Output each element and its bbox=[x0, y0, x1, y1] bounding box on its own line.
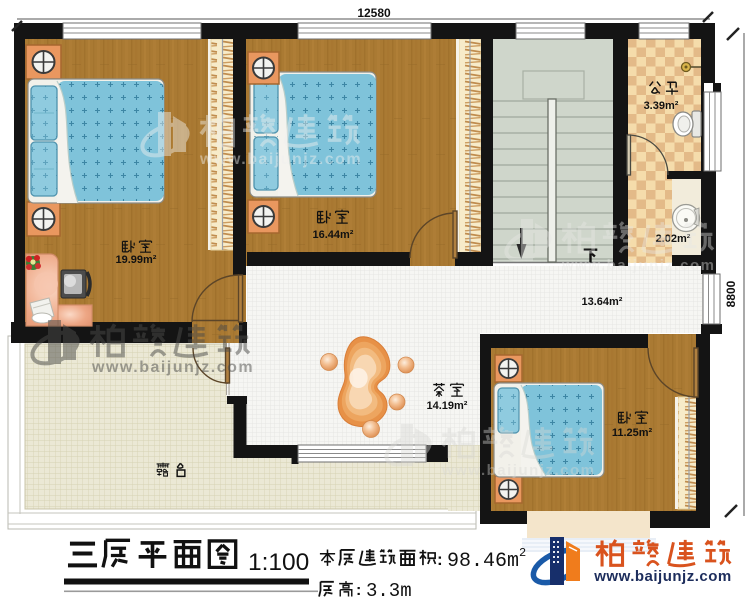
svg-text:www.baijunjz.com: www.baijunjz.com bbox=[593, 568, 731, 585]
svg-text:11.25m²: 11.25m² bbox=[612, 427, 653, 439]
svg-text:14.19m²: 14.19m² bbox=[427, 400, 468, 412]
svg-text::: : bbox=[437, 550, 443, 569]
svg-text:12580: 12580 bbox=[357, 6, 391, 20]
svg-text:98.46m: 98.46m bbox=[447, 550, 519, 573]
svg-text:13.64m²: 13.64m² bbox=[582, 296, 623, 308]
svg-text:19.99m²: 19.99m² bbox=[116, 254, 157, 266]
svg-text:3.3m: 3.3m bbox=[366, 580, 412, 599]
svg-text:8800: 8800 bbox=[724, 280, 738, 307]
svg-text::: : bbox=[356, 582, 361, 599]
svg-text:3.39m²: 3.39m² bbox=[644, 100, 679, 112]
svg-text:2: 2 bbox=[519, 546, 526, 560]
svg-text:www.baijunjz.com: www.baijunjz.com bbox=[199, 151, 362, 168]
svg-text:1:100: 1:100 bbox=[248, 549, 309, 576]
svg-text:16.44m²: 16.44m² bbox=[313, 229, 354, 241]
svg-text:www.baijunjz.com: www.baijunjz.com bbox=[561, 257, 715, 274]
svg-text:www.baijunjz.com: www.baijunjz.com bbox=[91, 359, 254, 376]
svg-text:www.baijunjz.com: www.baijunjz.com bbox=[441, 462, 595, 479]
